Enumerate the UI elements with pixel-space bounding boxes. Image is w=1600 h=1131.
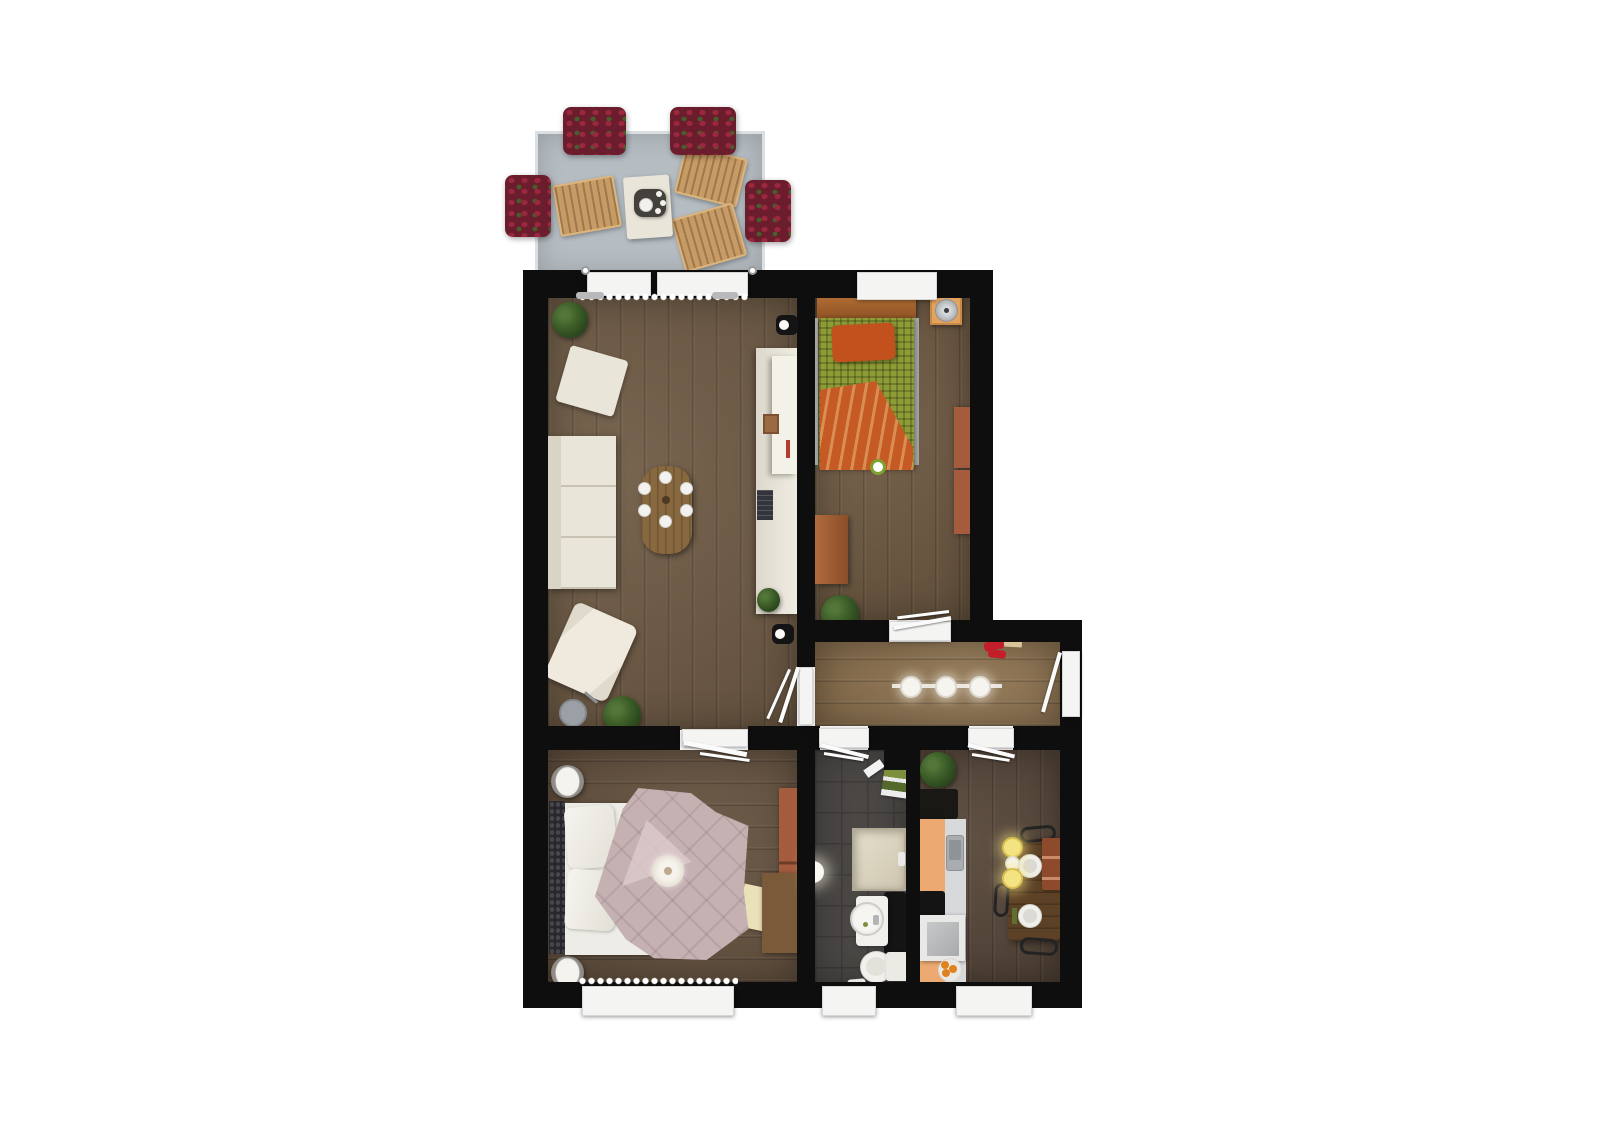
- living-plant-top: [552, 302, 588, 338]
- kitchen-sink-basin: [949, 840, 961, 860]
- flower-box-right: [745, 180, 791, 242]
- bed1-rail-right: [914, 318, 919, 465]
- coffee-cup-6: [680, 482, 693, 495]
- balcony-cup-dot-1: [656, 191, 662, 197]
- hallway-light-3: [969, 676, 991, 698]
- balcony-cup-dot-3: [655, 208, 661, 214]
- wall-left: [523, 270, 548, 1008]
- dining-plate-1-inner: [1023, 859, 1037, 873]
- kitchen-plant: [920, 752, 956, 788]
- balcony-door-handle-right: [748, 266, 757, 275]
- wall-unit-red-vase: [786, 440, 790, 458]
- balcony-door-handle-left: [581, 266, 590, 275]
- wall-living-hall-stub: [797, 642, 815, 667]
- coffee-cup-1: [659, 471, 672, 484]
- coffee-cup-3: [638, 504, 651, 517]
- bath-toilet-seat: [866, 957, 886, 976]
- kitchen-pendant-2: [1002, 868, 1023, 889]
- dining-plate-2-inner: [1023, 909, 1037, 923]
- kitchen-cooktop: [918, 891, 945, 917]
- bed1-cabinet-left: [815, 515, 848, 584]
- master-curtain: [578, 977, 738, 987]
- wall-hall-bottom-right: [1013, 726, 1082, 750]
- wall-bed1-hall-left: [797, 620, 889, 642]
- wall-bed1-hall-right: [951, 620, 993, 642]
- balcony-cup-dot-2: [660, 200, 666, 206]
- dining-cutting-board: [1042, 838, 1062, 890]
- living-wall-lamp-bottom-bulb: [775, 629, 785, 639]
- bath-window: [822, 986, 876, 1016]
- hallway-light-1: [900, 676, 922, 698]
- master-dresser: [762, 873, 800, 953]
- floor-plan: [0, 0, 1600, 1131]
- kitchen-window: [956, 986, 1032, 1016]
- kitchen-orange-2: [949, 965, 957, 973]
- bed1-orange-pillow: [831, 322, 896, 362]
- dining-napkin-2: [1012, 908, 1017, 924]
- wall-unit-plant: [757, 588, 780, 612]
- master-pouf-top: [551, 765, 584, 798]
- wall-master-bath: [797, 726, 815, 1008]
- bath-shower-fixture: [898, 852, 905, 866]
- master-window: [582, 986, 734, 1016]
- wall-living-master-left: [523, 726, 680, 750]
- bath-faucet: [873, 915, 879, 925]
- bed1-green-dot: [870, 459, 886, 475]
- balcony-cup-large: [639, 198, 653, 212]
- living-hall-door-threshold: [799, 667, 813, 725]
- flower-box-top-right: [670, 107, 736, 155]
- balcony-lounger-left: [552, 175, 622, 237]
- kitchen-orange-3: [942, 969, 950, 977]
- kitchen-tall-cabinet: [918, 789, 958, 819]
- dining-chair-bottom: [1019, 937, 1058, 957]
- master-bed-knit-headboard: [549, 801, 565, 954]
- wall-unit-picture-frame: [763, 414, 779, 434]
- wall-living-bed1: [797, 270, 815, 642]
- living-floor-lamp: [559, 699, 587, 727]
- coffee-cup-4: [659, 515, 672, 528]
- wall-right-upper: [970, 270, 993, 642]
- wall-unit-books: [757, 490, 773, 520]
- living-wall-lamp-top-bulb: [779, 320, 789, 330]
- master-flower-pillow-center: [664, 867, 672, 875]
- kitchen-stove-door: [927, 922, 959, 956]
- wall-bath-partition: [884, 744, 906, 770]
- coffee-cup-2: [638, 482, 651, 495]
- kitchen-pendant-1: [1002, 837, 1023, 858]
- entrance-door-threshold: [1062, 651, 1080, 717]
- living-curtain-rod-left: [576, 292, 604, 299]
- kitchen-orange-1: [941, 961, 949, 969]
- bed1-speaker-dot: [944, 308, 949, 313]
- hallway-light-2: [935, 676, 957, 698]
- bath-soap: [863, 922, 868, 927]
- bath-toilet-tank: [886, 952, 908, 981]
- living-curtain-rod-right: [712, 292, 738, 299]
- coffee-cup-5: [680, 504, 693, 517]
- flower-box-left: [505, 175, 551, 237]
- living-sofa: [548, 436, 616, 589]
- wall-bath-kitchen: [906, 726, 920, 1008]
- flower-box-top-left: [563, 107, 626, 155]
- wall-living-master-right: [748, 726, 797, 750]
- coffee-table-center-dot: [662, 496, 670, 504]
- bedroom1-window: [857, 272, 937, 300]
